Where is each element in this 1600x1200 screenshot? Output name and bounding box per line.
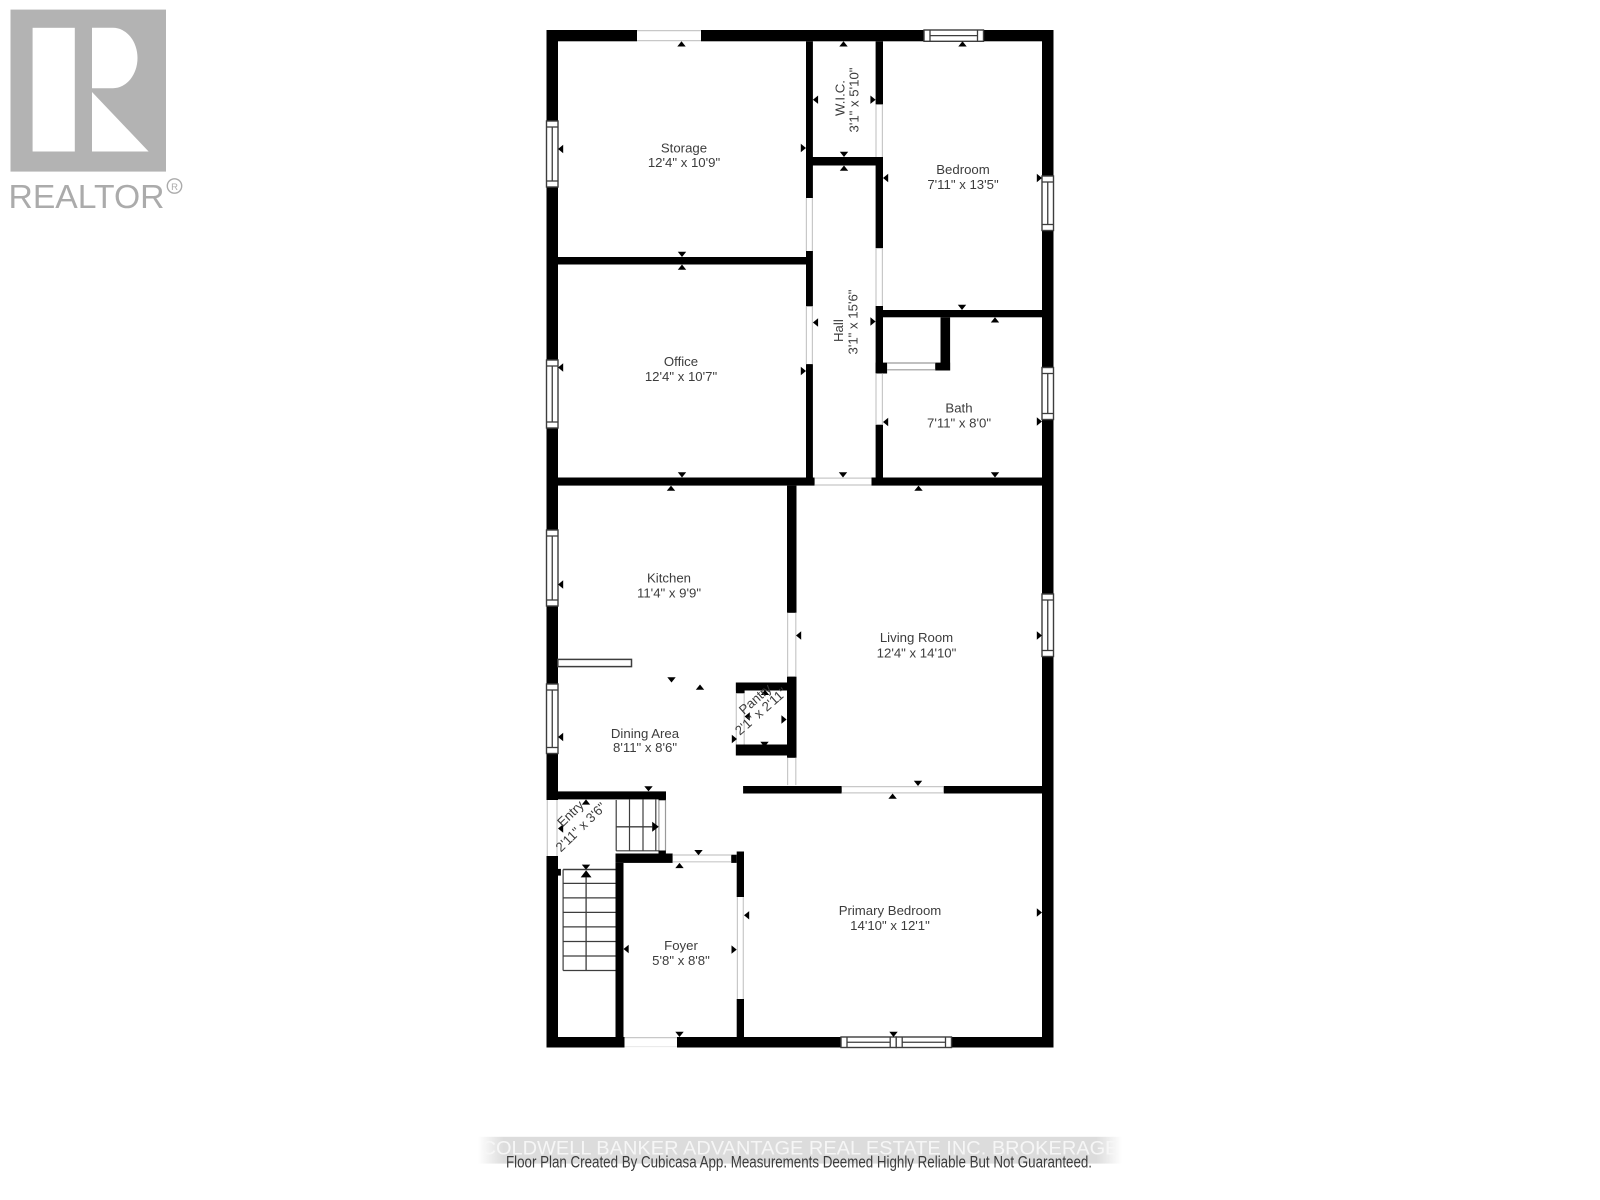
svg-text:Dining Area: Dining Area — [611, 726, 680, 741]
svg-text:12'4" x 10'9": 12'4" x 10'9" — [648, 155, 721, 170]
svg-text:12'4" x 14'10": 12'4" x 14'10" — [877, 645, 957, 660]
svg-text:Bedroom: Bedroom — [936, 162, 990, 177]
svg-text:Kitchen: Kitchen — [647, 571, 691, 586]
svg-text:11'4" x 9'9": 11'4" x 9'9" — [637, 586, 701, 601]
svg-text:7'11" x 13'5": 7'11" x 13'5" — [927, 177, 999, 192]
svg-text:8'11" x 8'6": 8'11" x 8'6" — [613, 740, 677, 755]
svg-text:3'1" x 15'6": 3'1" x 15'6" — [846, 289, 861, 354]
svg-text:7'11" x 8'0": 7'11" x 8'0" — [927, 416, 991, 431]
svg-text:Bath: Bath — [945, 400, 972, 415]
svg-text:Foyer: Foyer — [664, 938, 698, 953]
svg-text:W.I.C.: W.I.C. — [832, 80, 847, 116]
svg-text:REALTOR: REALTOR — [9, 179, 165, 216]
svg-text:Living Room: Living Room — [880, 630, 953, 645]
svg-text:5'8" x 8'8": 5'8" x 8'8" — [652, 953, 710, 968]
svg-text:Office: Office — [664, 354, 698, 369]
svg-text:Primary Bedroom: Primary Bedroom — [839, 903, 942, 918]
svg-text:3'1" x 5'10": 3'1" x 5'10" — [846, 67, 861, 132]
svg-text:Hall: Hall — [831, 319, 846, 342]
svg-text:14'10" x 12'1": 14'10" x 12'1" — [850, 918, 930, 933]
svg-text:Floor Plan Created By Cubicasa: Floor Plan Created By Cubicasa App. Meas… — [506, 1154, 1092, 1172]
svg-text:Storage: Storage — [661, 141, 707, 156]
svg-text:R: R — [171, 182, 178, 193]
svg-text:12'4" x 10'7": 12'4" x 10'7" — [645, 369, 718, 384]
